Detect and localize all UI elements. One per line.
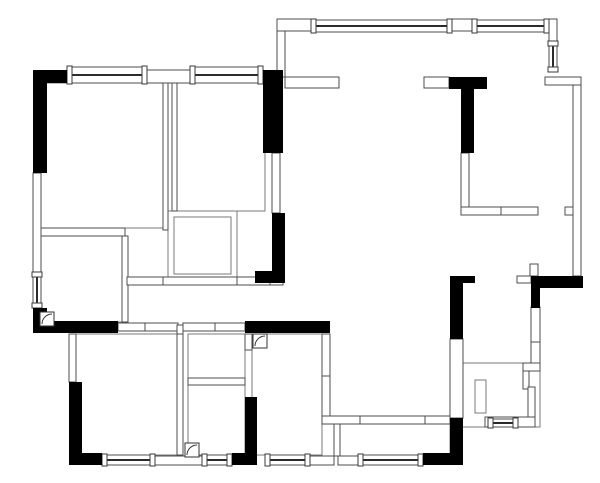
solid-wall	[450, 418, 463, 465]
window-post	[150, 454, 155, 466]
room-outline	[174, 217, 231, 274]
partition-wall	[501, 207, 538, 215]
partition-wall	[277, 19, 311, 31]
partition-wall	[118, 323, 145, 331]
room-outline	[177, 83, 265, 211]
partition-wall	[41, 228, 125, 236]
partition-wall	[531, 307, 540, 342]
window-post	[548, 41, 558, 46]
partition-wall	[565, 207, 573, 215]
window-post	[102, 454, 107, 466]
solid-wall	[461, 89, 474, 153]
partition-wall	[360, 416, 425, 424]
solid-wall	[449, 77, 487, 89]
partition-wall	[461, 153, 469, 207]
solid-wall	[245, 321, 330, 333]
window-post	[67, 66, 72, 84]
partition-wall	[517, 276, 531, 283]
partition-wall	[322, 416, 360, 424]
solid-wall	[33, 70, 47, 173]
partition-wall	[69, 334, 76, 382]
solid-wall	[531, 276, 583, 288]
partition-wall	[33, 173, 41, 272]
partition-wall	[245, 334, 252, 350]
partition-wall	[549, 19, 557, 41]
room-outline	[76, 334, 177, 455]
partition-wall	[450, 339, 463, 418]
solid-wall	[463, 276, 475, 283]
partition-wall	[545, 77, 581, 85]
window-post	[311, 19, 316, 33]
partition-wall	[172, 83, 177, 211]
window-post	[32, 272, 42, 277]
solid-wall	[263, 70, 283, 153]
floor-plan-canvas	[0, 0, 600, 483]
window-post	[513, 418, 518, 428]
partition-wall	[452, 19, 472, 31]
room-outline	[334, 424, 450, 456]
solid-wall	[69, 382, 82, 465]
room-outline	[475, 380, 486, 413]
partition-wall	[183, 323, 215, 331]
partition-wall	[573, 85, 581, 276]
partition-wall	[523, 363, 540, 371]
partition-wall	[322, 376, 330, 418]
window-post	[202, 454, 207, 466]
solid-wall	[531, 288, 540, 308]
window-post	[265, 454, 270, 466]
room-outline	[188, 334, 245, 378]
partition-wall	[310, 456, 334, 465]
window-post	[227, 454, 232, 466]
room-outline	[168, 211, 237, 280]
window-post	[358, 454, 363, 466]
floor-plan-svg	[0, 0, 600, 483]
window-post	[548, 67, 558, 72]
partition-wall	[215, 323, 245, 331]
window-post	[190, 66, 195, 84]
solid-wall	[245, 397, 257, 465]
window-post	[472, 19, 477, 33]
room-outline	[252, 334, 322, 455]
partition-wall	[177, 334, 183, 455]
partition-wall	[528, 387, 535, 417]
window-post	[258, 66, 263, 84]
partition-wall	[163, 83, 168, 230]
solid-wall	[69, 453, 102, 465]
partition-wall	[188, 378, 245, 385]
partition-wall	[425, 416, 450, 424]
window-post	[418, 454, 423, 466]
room-outline	[41, 236, 122, 322]
window-post	[305, 454, 310, 466]
partition-wall	[523, 371, 529, 389]
partition-wall	[147, 70, 190, 83]
partition-wall	[461, 207, 501, 215]
window-post	[488, 418, 493, 428]
window-post	[142, 66, 147, 84]
partition-wall	[334, 424, 340, 456]
partition-wall	[424, 77, 449, 88]
window-post	[32, 303, 42, 308]
solid-wall	[450, 276, 463, 339]
partition-wall	[530, 264, 538, 276]
partition-wall	[285, 77, 339, 88]
partition-wall	[145, 323, 178, 331]
window-post	[544, 19, 549, 33]
room-outline	[40, 83, 163, 228]
partition-wall	[322, 334, 330, 376]
partition-wall	[531, 342, 540, 365]
partition-wall	[272, 153, 280, 213]
window-post	[447, 19, 452, 33]
solid-wall	[255, 271, 285, 283]
partition-wall	[127, 277, 163, 285]
partition-wall	[338, 456, 358, 465]
partition-wall	[163, 277, 237, 285]
